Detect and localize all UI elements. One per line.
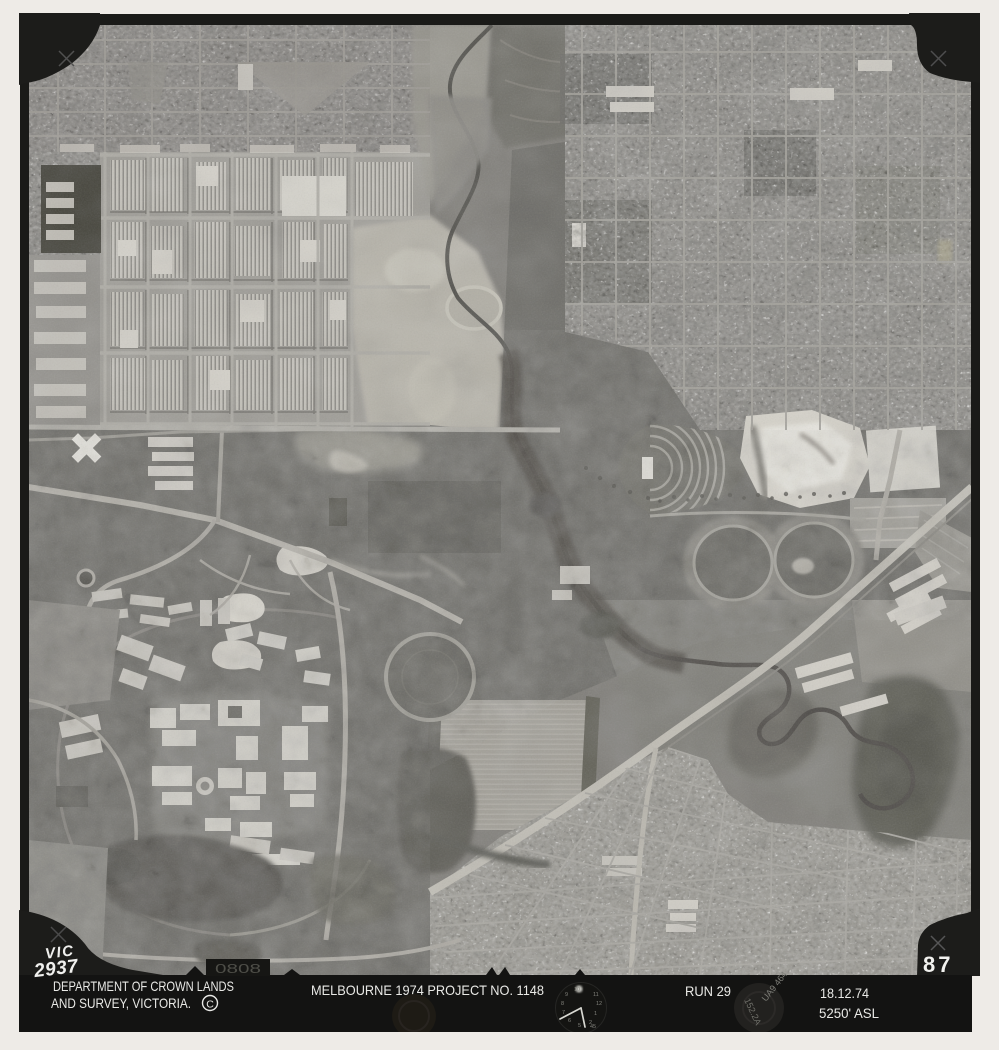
- svg-text:12: 12: [596, 1001, 602, 1007]
- svg-text:MELBOURNE 1974 PROJECT NO. 114: MELBOURNE 1974 PROJECT NO. 1148: [311, 982, 544, 998]
- svg-text:5: 5: [578, 1023, 581, 1029]
- svg-text:6: 6: [568, 1018, 571, 1024]
- svg-text:AND SURVEY, VICTORIA.: AND SURVEY, VICTORIA.: [51, 995, 191, 1011]
- svg-text:11: 11: [593, 992, 599, 998]
- svg-text:RUN 29: RUN 29: [685, 983, 731, 999]
- svg-text:9: 9: [565, 992, 568, 998]
- svg-text:87: 87: [923, 952, 953, 977]
- svg-text:0808: 0808: [215, 961, 261, 976]
- svg-text:C: C: [206, 999, 214, 1011]
- svg-text:1: 1: [594, 1011, 597, 1017]
- svg-text:18.12.74: 18.12.74: [820, 985, 869, 1001]
- svg-text:10: 10: [574, 987, 580, 993]
- svg-text:8: 8: [561, 1001, 564, 1007]
- svg-text:5250' ASL: 5250' ASL: [819, 1005, 879, 1021]
- svg-text:7: 7: [562, 1010, 565, 1016]
- svg-text:45: 45: [590, 1024, 596, 1030]
- svg-text:DEPARTMENT OF CROWN LANDS: DEPARTMENT OF CROWN LANDS: [53, 978, 234, 994]
